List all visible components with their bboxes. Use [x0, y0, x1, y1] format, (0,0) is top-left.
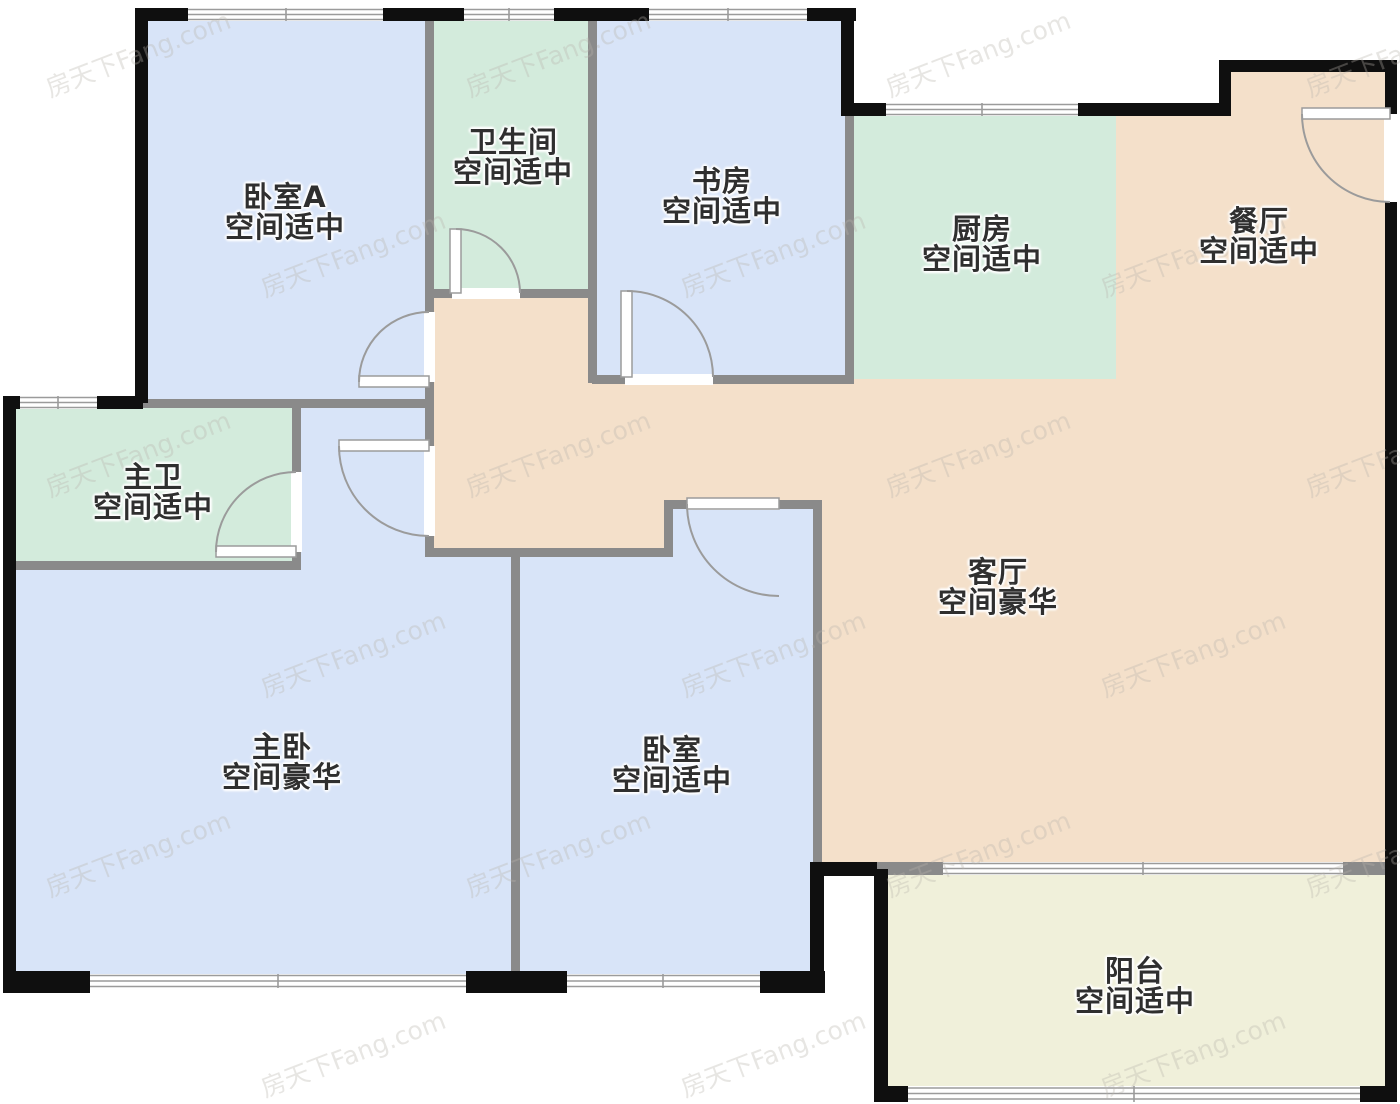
room-label-balcony: 阳台 空间适中 — [1005, 956, 1265, 1016]
room-name: 书房 — [592, 166, 852, 196]
window-balcony-bottom — [908, 1086, 1360, 1102]
room-label-bedroom-a: 卧室A 空间适中 — [155, 182, 415, 242]
room-label-study: 书房 空间适中 — [592, 166, 852, 226]
room-name: 主卧 — [152, 732, 412, 762]
room-size: 空间适中 — [1129, 236, 1389, 266]
room-size: 空间适中 — [23, 492, 283, 522]
window-master-bath — [20, 396, 97, 409]
window-master-bedroom-bottom — [90, 974, 466, 988]
room-size: 空间豪华 — [152, 762, 412, 792]
room-name: 卫生间 — [383, 127, 643, 157]
room-name: 客厅 — [868, 557, 1128, 587]
floorplan-canvas: 卧室A 空间适中 卫生间 空间适中 书房 空间适中 厨房 空间适中 餐厅 空间适… — [0, 0, 1400, 1104]
room-name: 卧室 — [542, 735, 802, 765]
room-label-living: 客厅 空间豪华 — [868, 557, 1128, 617]
room-label-master-bath: 主卫 空间适中 — [23, 462, 283, 522]
window-bathroom-top — [464, 8, 554, 21]
window-balcony-slider — [943, 862, 1343, 875]
room-size: 空间豪华 — [868, 587, 1128, 617]
window-study-top — [649, 8, 807, 21]
window-bedroom-bottom — [567, 974, 760, 988]
room-name: 主卫 — [23, 462, 283, 492]
room-label-dining: 餐厅 空间适中 — [1129, 206, 1389, 266]
window-bedroom-a-top — [188, 8, 383, 21]
room-label-kitchen: 厨房 空间适中 — [852, 214, 1112, 274]
room-name: 厨房 — [852, 214, 1112, 244]
room-name: 阳台 — [1005, 956, 1265, 986]
room-size: 空间适中 — [592, 196, 852, 226]
room-name: 卧室A — [155, 182, 415, 212]
room-size: 空间适中 — [1005, 986, 1265, 1016]
room-size: 空间适中 — [852, 244, 1112, 274]
room-label-master-bedroom: 主卧 空间豪华 — [152, 732, 412, 792]
room-size: 空间适中 — [542, 765, 802, 795]
room-label-bedroom: 卧室 空间适中 — [542, 735, 802, 795]
window-kitchen-top — [886, 103, 1078, 116]
room-size: 空间适中 — [155, 212, 415, 242]
room-name: 餐厅 — [1129, 206, 1389, 236]
